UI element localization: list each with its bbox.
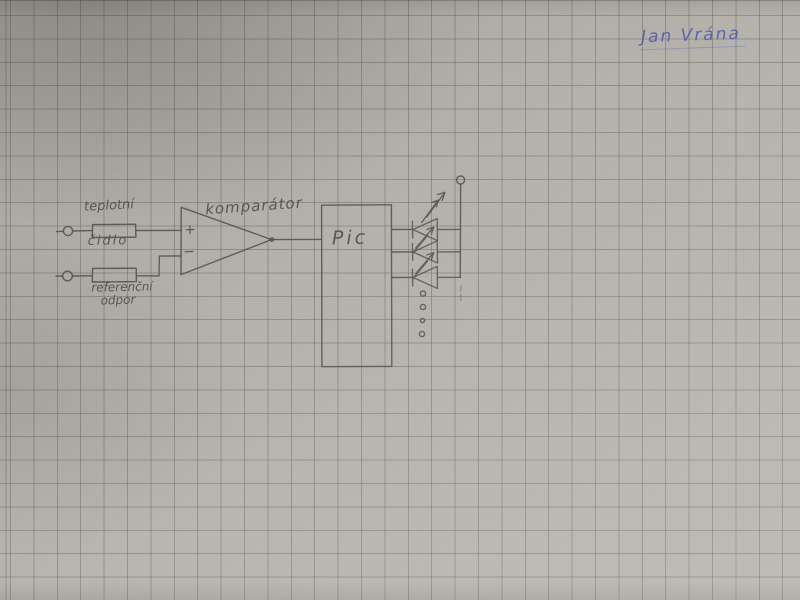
led-1 [412, 192, 460, 240]
author-signature: Jan Vrána [639, 24, 746, 51]
supply-terminal-circle [457, 176, 465, 184]
led-3-triangle [413, 266, 438, 288]
more-leds-dot-4 [419, 331, 424, 336]
reference-resistor-label-line2: odpor [100, 292, 135, 307]
bottom-input-terminal-circle [63, 271, 73, 281]
led-3-emission-arrow-a [416, 253, 434, 274]
led-3-emission-arrow-b [413, 261, 428, 279]
top-input-terminal-circle [63, 226, 72, 235]
more-leds-dot-3 [420, 318, 424, 322]
graph-paper-sheet: teplotní čidlo referenční odpor komparát… [0, 0, 800, 600]
temperature-sensor-label-line2: čidlo [88, 233, 129, 249]
comparator-symbol [181, 207, 321, 274]
led-supply-bus [457, 176, 465, 301]
comparator-triangle [181, 207, 272, 274]
led-2-triangle [413, 241, 438, 263]
more-leds-ellipsis [419, 291, 425, 337]
led-3 [412, 253, 460, 289]
more-leds-dot-1 [420, 291, 425, 296]
bottom-input-branch [56, 256, 181, 282]
temperature-sensor-label-line1: teplotní [84, 197, 135, 215]
bottom-rail-step-wire [136, 256, 181, 276]
led-2-emission-arrow-b [413, 235, 428, 253]
pic-label: Pic [332, 227, 369, 250]
comparator-minus-input-label: − [183, 244, 195, 260]
more-leds-dot-2 [420, 304, 425, 309]
comparator-plus-input-label: + [184, 222, 196, 238]
